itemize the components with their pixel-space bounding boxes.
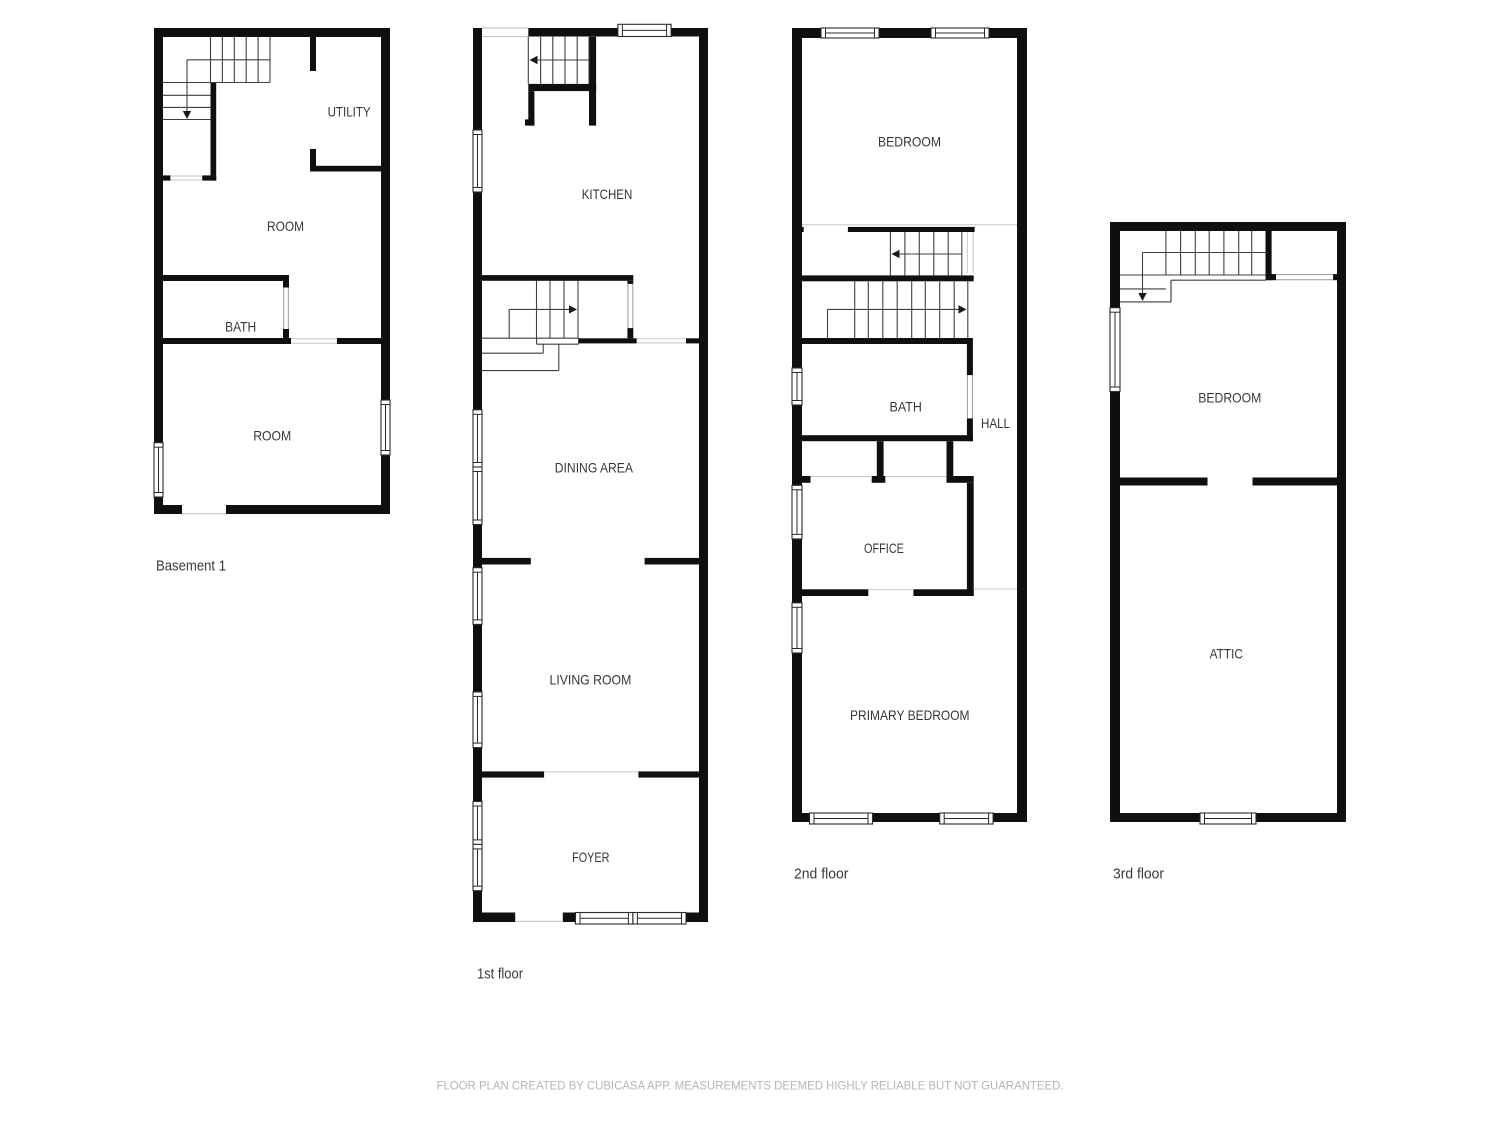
svg-text:KITCHEN: KITCHEN <box>582 186 633 202</box>
svg-text:BEDROOM: BEDROOM <box>878 134 941 150</box>
svg-text:2nd floor: 2nd floor <box>794 866 849 882</box>
svg-text:ATTIC: ATTIC <box>1210 646 1243 662</box>
svg-text:BATH: BATH <box>890 398 922 414</box>
svg-text:BEDROOM: BEDROOM <box>1198 389 1261 405</box>
svg-text:Basement 1: Basement 1 <box>156 558 226 574</box>
svg-text:FLOOR PLAN CREATED BY CUBICASA: FLOOR PLAN CREATED BY CUBICASA APP. MEAS… <box>437 1079 1064 1093</box>
svg-text:UTILITY: UTILITY <box>328 104 372 120</box>
svg-text:OFFICE: OFFICE <box>864 540 904 556</box>
svg-text:1st floor: 1st floor <box>477 966 523 982</box>
svg-text:ROOM: ROOM <box>253 428 291 444</box>
svg-text:PRIMARY BEDROOM: PRIMARY BEDROOM <box>850 707 970 723</box>
svg-text:3rd floor: 3rd floor <box>1113 866 1164 882</box>
svg-text:ROOM: ROOM <box>267 218 304 234</box>
svg-text:DINING AREA: DINING AREA <box>555 459 634 475</box>
svg-text:BATH: BATH <box>225 319 256 335</box>
svg-text:LIVING ROOM: LIVING ROOM <box>550 672 632 688</box>
svg-text:FOYER: FOYER <box>572 849 609 865</box>
svg-text:HALL: HALL <box>981 415 1010 431</box>
